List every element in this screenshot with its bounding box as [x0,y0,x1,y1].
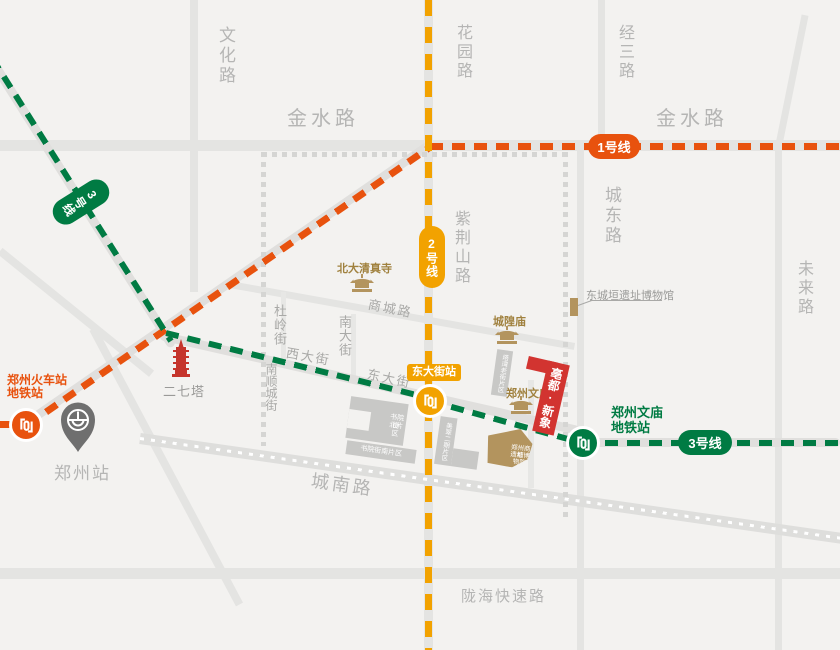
dongdajie-station-label: 东大街站 [407,364,461,381]
wenmiao-metro-station-label: 郑州文庙地铁站 [583,405,639,420]
building-notch [347,409,371,431]
metro-line3-badge-east: 3号线 [678,430,732,455]
erqi-tower-label: 二七塔 [163,381,205,400]
road-weilai [775,146,782,650]
road-label-zijinshan: 紫荆山路 [448,210,472,286]
road-label-huayuan: 花园路 [450,24,474,81]
shangdu-museum-label: 郑州商都遗址博物院 [509,444,510,451]
bodu-xinxiang-label: 亳都·新象 [536,366,567,430]
road-longhai [0,568,840,579]
road-label-weilai: 未来路 [791,260,815,317]
wenmiao-metro-station-icon[interactable] [566,426,600,460]
road-label-shangcheng: 商城路 [367,294,415,321]
building-shuyuan-north-label: 书院街北片区 [374,412,405,424]
road-wenhua [190,0,198,292]
street-label-nanshuncheng: 南顺城街 [263,363,280,411]
railway-station-icon [58,400,98,454]
shangdu-museum-polygon: 郑州商都遗址博物院 [485,426,534,469]
building-meicui: 美翠二期片区 [434,416,485,472]
road-jingsan [598,0,605,146]
street-label-duling: 杜岭街 [270,304,289,346]
road-label-chengdong: 城东路 [599,186,624,246]
dongchengyuan-leader-line [590,300,662,301]
metro-line2-badge: 2号线 [419,226,445,288]
metro-logo-icon [17,416,36,435]
road-label-jingsan: 经三路 [612,24,636,81]
building-meicui-foot [451,448,479,469]
metro-logo-icon [421,392,440,411]
metro-line2-badge-text: 2号线 [424,237,441,278]
road-weilai-north [775,15,809,151]
road-label-longhai: 陇海快速路 [461,585,546,606]
road-label-jinshui-west: 金水路 [287,102,359,131]
metro-line2 [425,0,432,650]
building-shuyuan-south: 书院街南片区 [345,440,416,464]
building-shuyuan-north: 书院街北片区 [345,396,408,446]
building-meicui-label: 美翠二期片区 [440,421,452,461]
railway-metro-station-icon[interactable] [9,408,43,442]
metro-line3-badge-diagonal: 3号线 [48,175,114,230]
dongdajie-station-icon[interactable] [413,384,447,418]
metro-line1-badge: 1号线 [588,134,640,159]
building-shuyuan-south-label: 书院街南片区 [360,445,403,459]
street-label-nandajie: 南大街 [335,315,354,357]
metro-line3-badge-diagonal-text: 3号线 [59,184,103,220]
city-wall-east [563,152,568,520]
map-canvas: 书院街北片区 书院街南片区 塔湾老街片区 美翠二期片区 郑州商都遗址博物院 金水… [0,0,840,650]
road-label-wenhua: 文化路 [213,26,238,86]
road-chengdong [577,146,584,650]
dongchengyuan-museum-marker[interactable] [570,298,578,316]
metro-logo-icon [574,434,593,453]
road-label-jinshui-east: 金水路 [656,102,728,131]
zhengzhou-station-label: 郑州站 [54,459,111,484]
